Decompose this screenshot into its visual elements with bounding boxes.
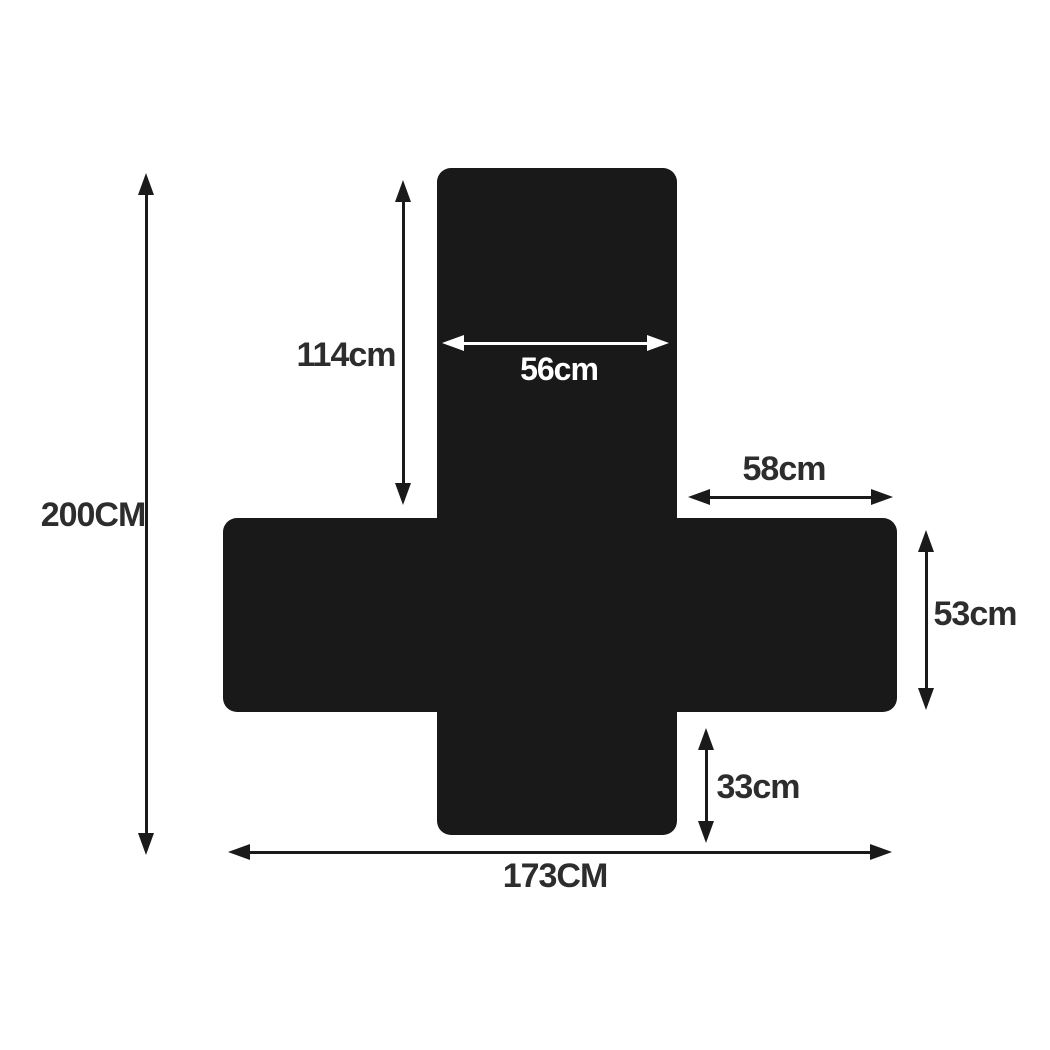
dim-label-side-panel-width: 58cm [743, 452, 826, 486]
dim-label-side-panel-height: 53cm [934, 597, 1017, 631]
dim-line [233, 851, 887, 854]
dim-label-back-panel-width: 56cm [520, 353, 598, 385]
dimension-diagram: 200CM 114cm 56cm 58cm 53cm 33cm 173CM [0, 0, 1050, 1050]
dim-arrow-back-panel-height [395, 180, 411, 505]
dim-label-back-panel-height: 114cm [297, 338, 396, 372]
dim-line [693, 496, 888, 499]
dim-arrow-side-panel-height [918, 530, 934, 710]
dim-arrow-back-panel-width [442, 335, 669, 351]
cover-back-seat-panel [437, 168, 677, 835]
dim-line [705, 733, 708, 838]
dim-label-front-skirt-height: 33cm [717, 770, 800, 804]
dim-label-total-width: 173CM [503, 859, 608, 893]
dim-line [447, 342, 664, 345]
dim-arrow-side-panel-width [688, 489, 893, 505]
cover-armrest-band-panel [223, 518, 897, 712]
dim-label-total-height: 200CM [41, 498, 146, 532]
dim-arrow-front-skirt-height [698, 728, 714, 843]
dim-line [925, 535, 928, 705]
dim-line [402, 185, 405, 500]
